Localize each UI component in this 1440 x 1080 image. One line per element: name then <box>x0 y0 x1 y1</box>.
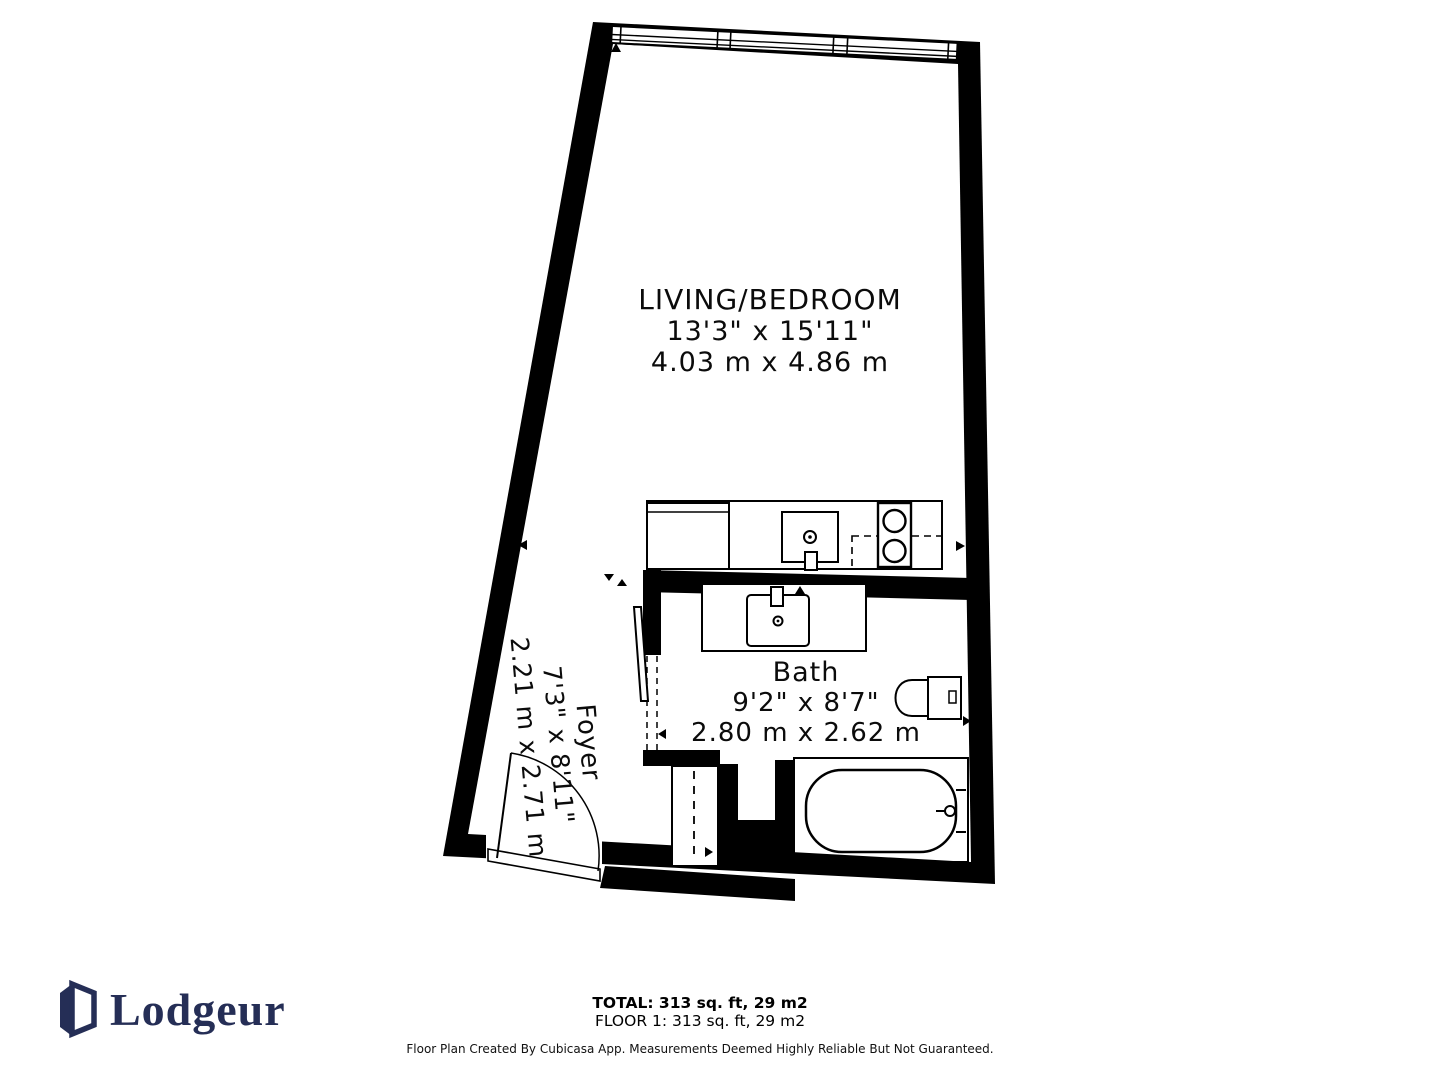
lodgeur-logo-icon <box>58 978 98 1040</box>
disclaimer-text: Floor Plan Created By Cubicasa App. Meas… <box>220 1042 1180 1057</box>
room-name: Bath <box>626 657 986 688</box>
fridge-icon <box>647 503 729 569</box>
room-dims-metric: 4.03 m x 4.86 m <box>570 347 970 378</box>
stove-icon <box>878 503 911 567</box>
room-dims-metric: 2.80 m x 2.62 m <box>626 718 986 748</box>
brand-name: Lodgeur <box>110 983 286 1036</box>
area-summary: TOTAL: 313 sq. ft, 29 m2 FLOOR 1: 313 sq… <box>300 994 1100 1030</box>
kitchen-sink-icon <box>782 512 838 570</box>
wall-chunk <box>737 820 777 870</box>
room-dims-imperial: 9'2" x 8'7" <box>626 688 986 718</box>
bath-left-wall <box>643 570 661 655</box>
wall-chunk <box>775 760 794 870</box>
room-dims-imperial: 13'3" x 15'11" <box>570 316 970 347</box>
brand-logo-block: Lodgeur <box>58 978 286 1040</box>
wall-chunk <box>718 764 738 870</box>
bath-label: Bath 9'2" x 8'7" 2.80 m x 2.62 m <box>626 657 986 748</box>
wall-stub <box>643 750 720 766</box>
floorplan-page: { "plan": { "rooms": [ {"name": "LIVING/… <box>0 0 1440 1080</box>
living-room-label: LIVING/BEDROOM 13'3" x 15'11" 4.03 m x 4… <box>570 284 970 378</box>
floor-area-text: FLOOR 1: 313 sq. ft, 29 m2 <box>300 1012 1100 1030</box>
floor-plan-drawing <box>0 0 1440 1080</box>
vanity-sink-icon <box>702 584 866 651</box>
room-name: LIVING/BEDROOM <box>570 284 970 316</box>
total-area-text: TOTAL: 313 sq. ft, 29 m2 <box>300 994 1100 1012</box>
